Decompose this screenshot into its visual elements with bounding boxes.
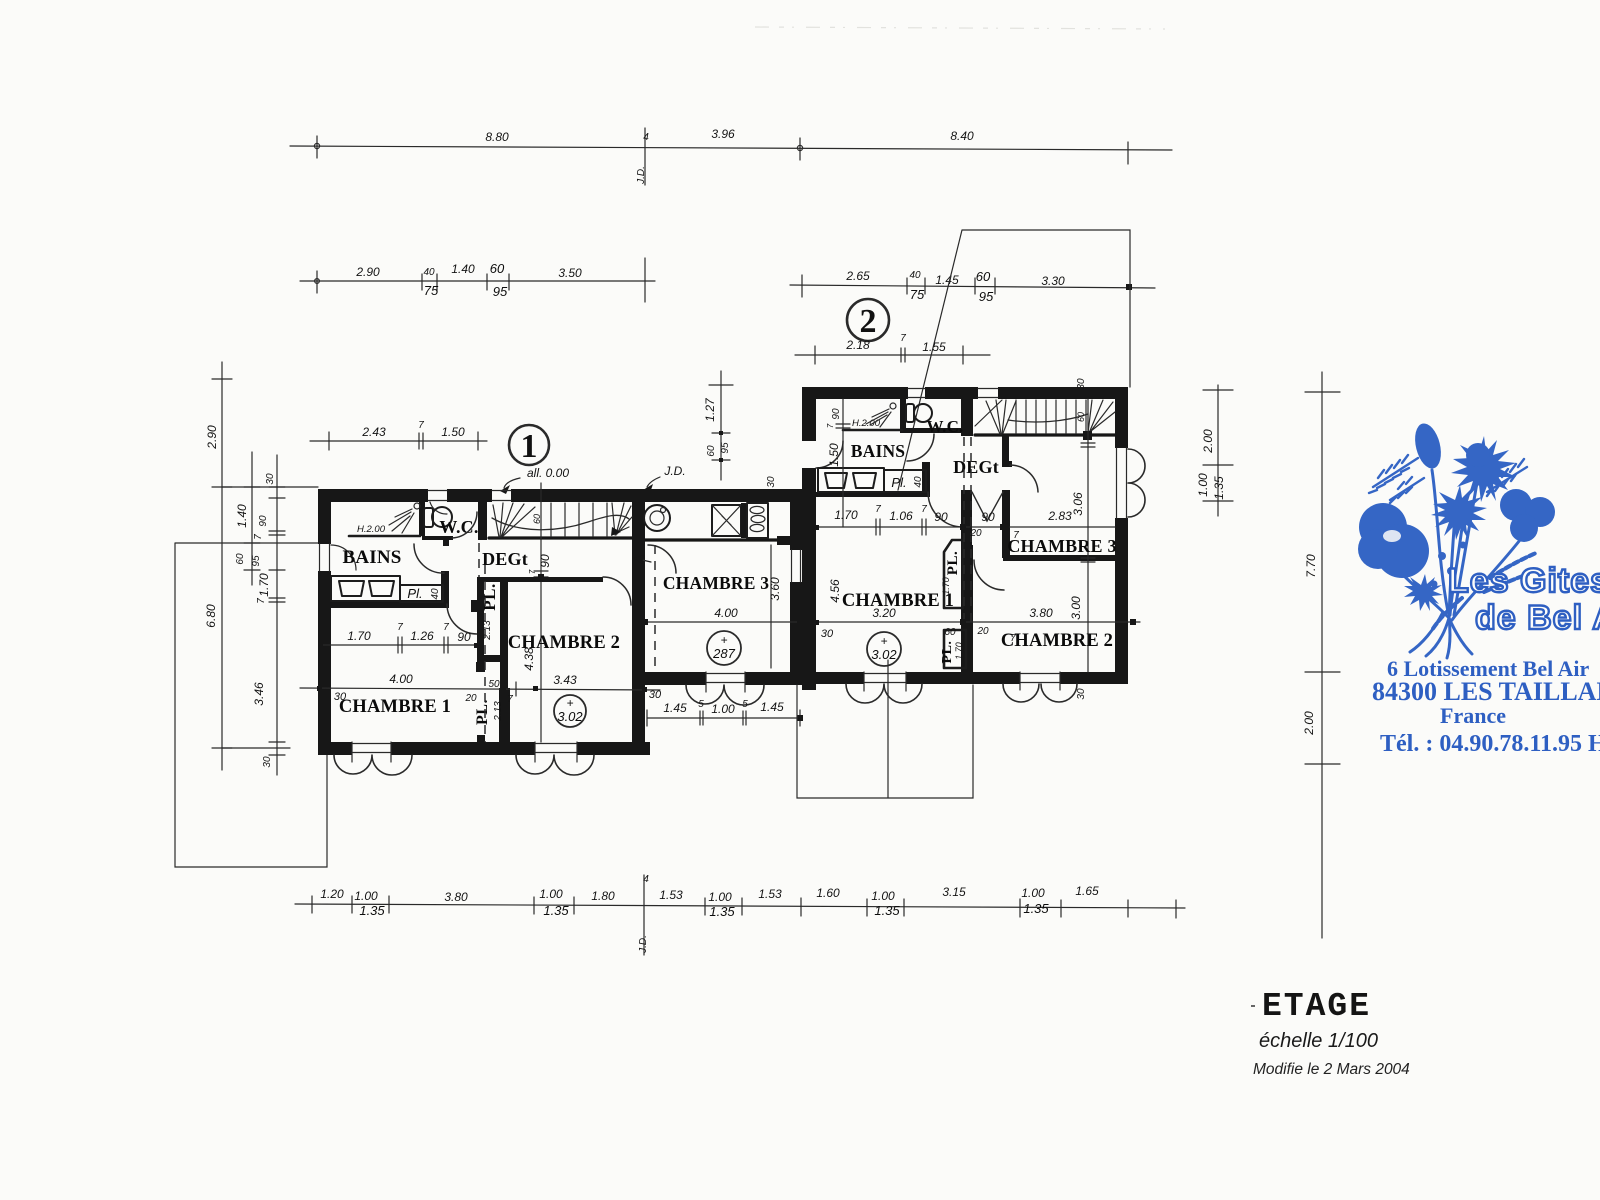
svg-text:1.00: 1.00 xyxy=(354,889,378,903)
svg-text:7: 7 xyxy=(256,598,267,604)
svg-text:CHAMBRE 3: CHAMBRE 3 xyxy=(663,573,769,593)
svg-text:1.35: 1.35 xyxy=(1212,476,1226,500)
svg-text:CHAMBRE 2: CHAMBRE 2 xyxy=(1001,631,1113,651)
svg-text:7: 7 xyxy=(826,423,835,428)
svg-text:CHAMBRE 1: CHAMBRE 1 xyxy=(842,591,954,611)
svg-text:1.35: 1.35 xyxy=(874,903,900,918)
svg-text:3.06: 3.06 xyxy=(1071,492,1085,516)
svg-text:30: 30 xyxy=(1076,378,1087,390)
svg-text:30: 30 xyxy=(262,756,273,768)
svg-text:30: 30 xyxy=(649,689,662,701)
svg-text:95: 95 xyxy=(251,555,262,567)
svg-text:1.35: 1.35 xyxy=(709,904,735,919)
svg-text:1.53: 1.53 xyxy=(758,887,782,901)
svg-text:1.40: 1.40 xyxy=(451,262,475,276)
svg-text:1.00: 1.00 xyxy=(708,890,732,904)
svg-text:Pl.: Pl. xyxy=(891,475,906,490)
svg-text:France: France xyxy=(1440,703,1506,728)
svg-text:1.45: 1.45 xyxy=(760,700,784,714)
svg-text:5: 5 xyxy=(742,699,748,710)
svg-text:PL.: PL. xyxy=(940,641,955,664)
svg-text:95: 95 xyxy=(720,442,731,454)
svg-text:20: 20 xyxy=(976,626,989,637)
svg-text:95: 95 xyxy=(979,289,994,304)
svg-text:7.70: 7.70 xyxy=(1304,554,1318,578)
svg-text:7: 7 xyxy=(253,534,264,540)
svg-text:1.45: 1.45 xyxy=(935,273,959,287)
svg-text:1.50: 1.50 xyxy=(441,425,465,439)
svg-text:1.53: 1.53 xyxy=(659,888,683,902)
svg-text:75: 75 xyxy=(910,287,925,302)
svg-text:PL.: PL. xyxy=(945,551,961,575)
svg-text:all. 0.00: all. 0.00 xyxy=(527,466,569,480)
svg-text:60: 60 xyxy=(490,261,505,276)
svg-text:30: 30 xyxy=(821,628,834,640)
svg-text:3.30: 3.30 xyxy=(1041,274,1065,288)
svg-text:DEGt: DEGt xyxy=(482,549,528,569)
svg-text:de Bel Air: de Bel Air xyxy=(1475,599,1600,637)
svg-text:1.00: 1.00 xyxy=(1021,886,1045,900)
svg-text:2.00: 2.00 xyxy=(1201,429,1215,454)
svg-text:ETAGE: ETAGE xyxy=(1262,988,1371,1025)
svg-text:7: 7 xyxy=(397,622,403,633)
svg-text:3.02: 3.02 xyxy=(557,709,583,724)
svg-text:40: 40 xyxy=(909,270,921,281)
svg-text:3.15: 3.15 xyxy=(942,885,966,899)
svg-text:1.00: 1.00 xyxy=(711,702,735,716)
svg-text:20: 20 xyxy=(969,528,982,539)
svg-text:2: 2 xyxy=(860,303,877,340)
svg-text:1.35: 1.35 xyxy=(359,903,385,918)
svg-text:1.40: 1.40 xyxy=(235,504,249,528)
svg-text:3.60: 3.60 xyxy=(768,577,782,601)
svg-text:CHAMBRE 2: CHAMBRE 2 xyxy=(508,633,620,653)
svg-text:1.26: 1.26 xyxy=(410,629,434,643)
svg-text:7: 7 xyxy=(875,504,881,515)
svg-text:30: 30 xyxy=(766,476,777,488)
svg-text:1.00: 1.00 xyxy=(871,889,895,903)
svg-text:40: 40 xyxy=(913,476,924,488)
svg-text:2.65: 2.65 xyxy=(845,269,870,283)
svg-text:40: 40 xyxy=(430,588,441,600)
svg-text:2.90: 2.90 xyxy=(205,425,219,450)
svg-text:J.D.: J.D. xyxy=(636,166,647,185)
svg-text:1.20: 1.20 xyxy=(320,887,344,901)
svg-text:40: 40 xyxy=(423,267,435,278)
svg-text:1.60: 1.60 xyxy=(816,886,840,900)
svg-text:7: 7 xyxy=(507,694,513,705)
svg-text:1.70: 1.70 xyxy=(954,642,964,660)
svg-text:8.40: 8.40 xyxy=(950,129,974,143)
svg-text:1.00: 1.00 xyxy=(1196,473,1210,497)
svg-text:H.2.00: H.2.00 xyxy=(357,524,386,535)
svg-text:4.00: 4.00 xyxy=(389,672,413,686)
svg-text:1.35: 1.35 xyxy=(543,903,569,918)
svg-text:7: 7 xyxy=(443,622,449,633)
svg-text:30: 30 xyxy=(265,473,276,485)
svg-text:90: 90 xyxy=(831,408,842,420)
svg-text:3.43: 3.43 xyxy=(553,673,577,687)
svg-text:CHAMBRE 1: CHAMBRE 1 xyxy=(339,697,451,717)
svg-text:J.D.: J.D. xyxy=(638,935,649,954)
svg-text:60: 60 xyxy=(976,269,991,284)
svg-text:3.80: 3.80 xyxy=(444,890,468,904)
svg-text:6.80: 6.80 xyxy=(204,604,218,628)
svg-text:1.45: 1.45 xyxy=(663,701,687,715)
svg-text:2.18: 2.18 xyxy=(845,338,870,352)
svg-text:Modifie le 2 Mars 2004: Modifie le 2 Mars 2004 xyxy=(1253,1061,1410,1078)
svg-text:3.46: 3.46 xyxy=(252,682,266,706)
svg-text:90: 90 xyxy=(457,630,471,644)
svg-text:1.70: 1.70 xyxy=(834,508,858,522)
svg-text:30: 30 xyxy=(1076,688,1087,700)
svg-text:7: 7 xyxy=(921,504,927,515)
svg-text:7: 7 xyxy=(528,569,537,574)
svg-text:3.02: 3.02 xyxy=(871,647,897,662)
svg-text:7: 7 xyxy=(1010,633,1016,644)
svg-text:1: 1 xyxy=(521,428,538,465)
svg-text:95: 95 xyxy=(493,284,508,299)
svg-text:90: 90 xyxy=(981,510,995,524)
svg-text:W.C.: W.C. xyxy=(926,417,963,436)
svg-text:60: 60 xyxy=(944,627,956,638)
svg-text:4: 4 xyxy=(643,874,649,885)
svg-text:+: + xyxy=(720,633,727,647)
svg-text:BAINS: BAINS xyxy=(851,441,906,461)
svg-text:4: 4 xyxy=(643,132,649,143)
svg-text:84300 LES TAILLADES: 84300 LES TAILLADES xyxy=(1372,677,1600,706)
svg-text:3.50: 3.50 xyxy=(558,266,582,280)
svg-text:2.43: 2.43 xyxy=(361,425,386,439)
svg-text:90: 90 xyxy=(538,554,552,568)
svg-text:+: + xyxy=(566,696,573,710)
svg-text:1.70: 1.70 xyxy=(257,573,271,597)
svg-text:3.96: 3.96 xyxy=(711,127,735,141)
svg-text:50: 50 xyxy=(488,679,500,690)
svg-text:3.80: 3.80 xyxy=(1029,606,1053,620)
svg-text:75: 75 xyxy=(424,283,439,298)
svg-text:60: 60 xyxy=(235,553,246,565)
svg-text:2.90: 2.90 xyxy=(355,265,380,279)
svg-text:7: 7 xyxy=(900,333,906,344)
svg-text:Les Gites: Les Gites xyxy=(1448,562,1600,600)
svg-text:2.83: 2.83 xyxy=(1047,509,1072,523)
svg-text:1.00: 1.00 xyxy=(539,887,563,901)
svg-text:J.D.: J.D. xyxy=(663,464,685,478)
svg-text:1.35: 1.35 xyxy=(1023,901,1049,916)
svg-text:1.65: 1.65 xyxy=(1075,884,1099,898)
svg-text:+: + xyxy=(880,634,887,648)
svg-text:4.56: 4.56 xyxy=(828,579,842,603)
svg-text:90: 90 xyxy=(258,515,269,527)
svg-text:Tél. : 04.90.78.11.95 HR: Tél. : 04.90.78.11.95 HR xyxy=(1380,731,1600,757)
svg-text:287: 287 xyxy=(712,646,735,661)
svg-text:90: 90 xyxy=(934,510,948,524)
svg-text:Pl.: Pl. xyxy=(407,586,422,601)
svg-text:1.27: 1.27 xyxy=(703,397,717,422)
svg-text:8.80: 8.80 xyxy=(485,130,509,144)
svg-text:60: 60 xyxy=(1076,412,1086,422)
svg-text:4.00: 4.00 xyxy=(714,606,738,620)
svg-text:1.70: 1.70 xyxy=(347,629,371,643)
svg-text:échelle 1/100: échelle 1/100 xyxy=(1259,1030,1378,1052)
svg-text:3.20: 3.20 xyxy=(872,606,896,620)
svg-text:2.13: 2.13 xyxy=(493,701,504,722)
svg-text:1.50: 1.50 xyxy=(827,443,841,467)
svg-text:CHAMBRE 3: CHAMBRE 3 xyxy=(1007,536,1116,556)
svg-text:1.80: 1.80 xyxy=(591,889,615,903)
svg-text:DEGt: DEGt xyxy=(953,457,999,477)
svg-text:BAINS: BAINS xyxy=(342,547,401,568)
svg-text:20: 20 xyxy=(464,693,477,704)
svg-text:2.13: 2.13 xyxy=(482,620,493,641)
svg-text:1.06: 1.06 xyxy=(889,509,913,523)
svg-text:60: 60 xyxy=(706,445,717,457)
svg-text:7: 7 xyxy=(418,420,424,431)
svg-text:3.00: 3.00 xyxy=(1069,596,1083,620)
svg-text:2.00: 2.00 xyxy=(1302,711,1316,736)
svg-text:PL.: PL. xyxy=(480,583,499,610)
svg-text:5: 5 xyxy=(698,699,704,710)
svg-text:1.55: 1.55 xyxy=(922,340,946,354)
